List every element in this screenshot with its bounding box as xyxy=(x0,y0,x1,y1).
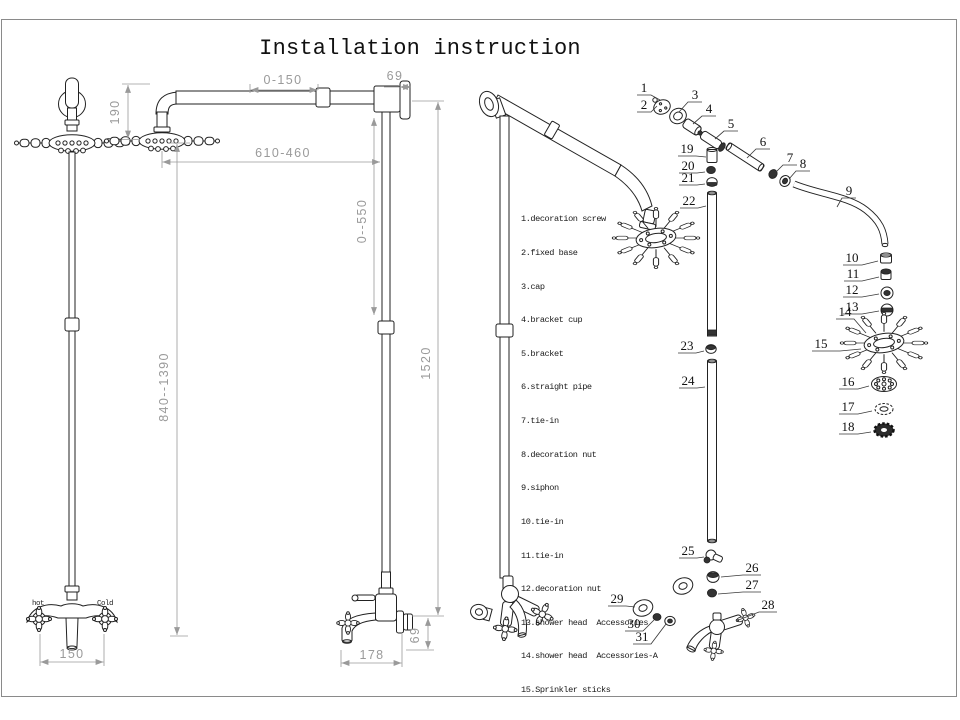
parts-list-item: 7.tie-in xyxy=(521,416,658,427)
parts-list-item: 10.tie-in xyxy=(521,517,658,528)
part-number-label-5: 5 xyxy=(728,116,735,131)
part-number-label-12: 12 xyxy=(846,282,859,297)
part-tie-in xyxy=(767,168,779,180)
side-view-drawing xyxy=(105,81,413,643)
dimension-label-0-550: 0--550 xyxy=(355,199,369,244)
parts-list-item: 15.Sprinkler sticks xyxy=(521,685,658,696)
part-number-label-15: 15 xyxy=(815,336,828,351)
parts-list-item: 4.bracket cup xyxy=(521,315,658,326)
dimension-label-150: 150 xyxy=(59,647,84,661)
part-decoration-nut xyxy=(778,174,792,189)
dimension-label-190: 190 xyxy=(108,99,122,124)
part-number-label-1: 1 xyxy=(641,80,648,95)
shower-arm xyxy=(176,91,374,104)
installation-diagram: hot Cold xyxy=(0,0,960,720)
parts-list-item: 5.bracket xyxy=(521,349,658,360)
dimension-label-178: 178 xyxy=(359,648,384,662)
part-number-label-7: 7 xyxy=(787,150,794,165)
part-number-label-3: 3 xyxy=(692,87,699,102)
cold-label: Cold xyxy=(97,600,113,608)
part-number-label-19: 19 xyxy=(681,141,694,156)
dimension-label-1520: 1520 xyxy=(419,346,433,379)
parts-list-item: 12.decoration nut xyxy=(521,584,658,595)
dimension-label-0-150: 0-150 xyxy=(264,73,303,87)
parts-list-item: 3.cap xyxy=(521,282,658,293)
dimension-label-610-460: 610-460 xyxy=(255,146,311,160)
part-number-label-27: 27 xyxy=(746,577,760,592)
parts-list-item: 6.straight pipe xyxy=(521,382,658,393)
part-number-label-10: 10 xyxy=(846,250,859,265)
riser-pipe-perspective xyxy=(500,116,509,578)
part-rubber-ring xyxy=(875,404,893,415)
part-number-label-24: 24 xyxy=(682,373,696,388)
part-number-label-9: 9 xyxy=(846,183,853,198)
part-number-label-2: 2 xyxy=(641,97,648,112)
page-border xyxy=(2,20,957,697)
part-shower-head-accessories-b xyxy=(872,377,897,392)
dimension-label-69-bottom: 69 xyxy=(408,627,422,644)
part-number-label-25: 25 xyxy=(682,543,695,558)
riser-pipe-side xyxy=(382,112,390,573)
part-straight-pipe-24 xyxy=(708,361,717,541)
part-number-label-6: 6 xyxy=(760,134,767,149)
riser-pipe xyxy=(69,152,75,588)
part-diverter xyxy=(704,550,723,563)
part-bracket xyxy=(696,128,727,153)
part-sprinkler-head xyxy=(840,312,927,373)
parts-list-item: 1.decoration screw xyxy=(521,214,658,225)
part-number-label-14: 14 xyxy=(839,304,853,319)
part-number-label-26: 26 xyxy=(746,560,760,575)
part-number-label-21: 21 xyxy=(682,170,695,185)
dimension-label-840-1390: 840--1390 xyxy=(157,352,171,422)
front-view-drawing: hot Cold xyxy=(15,78,130,650)
part-number-label-23: 23 xyxy=(681,338,694,353)
mixer-side xyxy=(337,572,413,643)
parts-list-item: 8.decoration nut xyxy=(521,450,658,461)
part-number-label-28: 28 xyxy=(762,597,775,612)
part-number-label-4: 4 xyxy=(706,101,713,116)
part-tie-in-18 xyxy=(875,424,894,437)
page-title: Installation instruction xyxy=(252,36,588,61)
dimension-label-69-top: 69 xyxy=(387,69,404,83)
part-number-label-18: 18 xyxy=(842,419,855,434)
part-straight-pipe-22 xyxy=(708,193,717,336)
parts-list-item: 14.shower head Accessories-A xyxy=(521,651,658,662)
part-number-label-8: 8 xyxy=(800,156,807,171)
parts-list-item: 2.fixed base xyxy=(521,248,658,259)
tee-fitting xyxy=(374,86,400,112)
hot-label: hot xyxy=(32,600,44,608)
part-number-label-11: 11 xyxy=(847,266,860,281)
parts-list: 1.decoration screw 2.fixed base 3.cap 4.… xyxy=(521,192,658,720)
part-number-label-22: 22 xyxy=(683,193,696,208)
parts-list-item: 11.tie-in xyxy=(521,551,658,562)
part-number-label-17: 17 xyxy=(842,399,856,414)
part-number-label-16: 16 xyxy=(842,374,856,389)
parts-list-item: 13.shower head Accessories xyxy=(521,618,658,629)
parts-list-item: 9.siphon xyxy=(521,483,658,494)
installation-instruction-sheet: hot Cold xyxy=(0,0,960,720)
part-mixer xyxy=(686,605,758,661)
